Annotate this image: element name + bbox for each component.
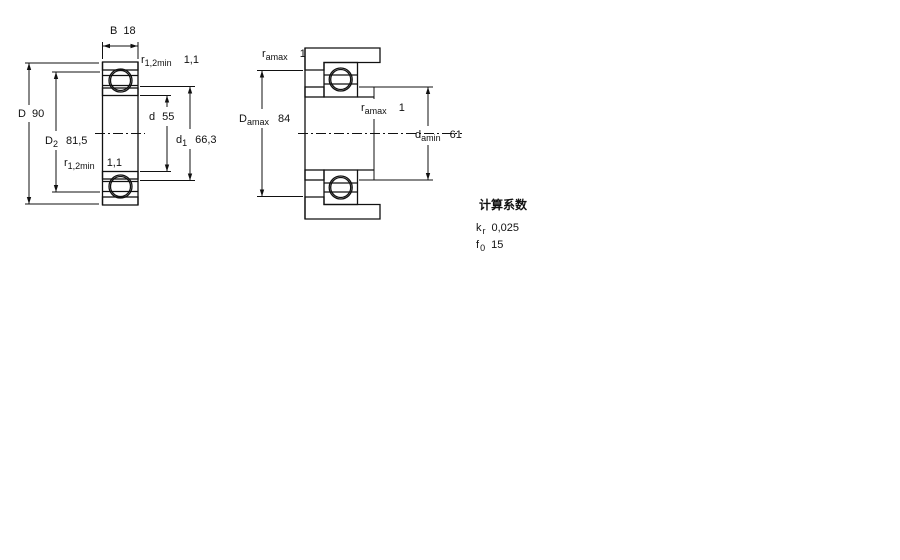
factor-f0: f015 [476, 239, 503, 253]
svg-text:D90: D90 [18, 108, 44, 120]
bearing-datasheet-drawing: B18 D90 D281,5 d55 d166,3 [0, 0, 900, 560]
calculation-factors-title: 计算系数 [479, 197, 528, 212]
dimension-d1: d166,3 [140, 87, 217, 181]
svg-text:d166,3: d166,3 [176, 134, 217, 148]
shaft-shoulder-bottom [305, 170, 324, 180]
svg-text:D281,5: D281,5 [45, 135, 87, 149]
dimension-d: d55 [140, 96, 174, 172]
technical-drawing-canvas: B18 D90 D281,5 d55 d166,3 [0, 0, 900, 560]
svg-text:damin61: damin61 [415, 129, 462, 143]
housing-top-section [305, 48, 380, 70]
shaft-shoulder-top [305, 87, 324, 97]
mounted-bearing-bottom-section [324, 170, 358, 205]
factor-kr: kr0,025 [476, 222, 519, 236]
dimension-D: D90 [18, 63, 99, 204]
svg-text:B18: B18 [110, 25, 136, 37]
label-ramax-mid: ramax1 [361, 102, 405, 116]
mounted-bearing-top-section [324, 63, 358, 98]
housing-bottom-section [305, 197, 380, 219]
dimension-B: B18 [103, 25, 139, 59]
figure-right-mounting-drawing: Damax84 damin61 ramax1 ramax1 [239, 48, 462, 219]
svg-text:d55: d55 [149, 111, 174, 123]
svg-text:Damax84: Damax84 [239, 113, 290, 127]
label-ramax-top: ramax1 [262, 48, 306, 62]
dimension-Damax: Damax84 [239, 71, 303, 197]
figure-left-bearing-cross-section: B18 D90 D281,5 d55 d166,3 [18, 25, 217, 205]
label-r12min-bottom: r1,2min1,1 [64, 157, 122, 171]
calculation-factors-block: 计算系数 kr0,025 f015 [476, 197, 528, 253]
dimension-D2: D281,5 [45, 72, 100, 192]
label-r12min-top: r1,2min1,1 [141, 54, 199, 68]
